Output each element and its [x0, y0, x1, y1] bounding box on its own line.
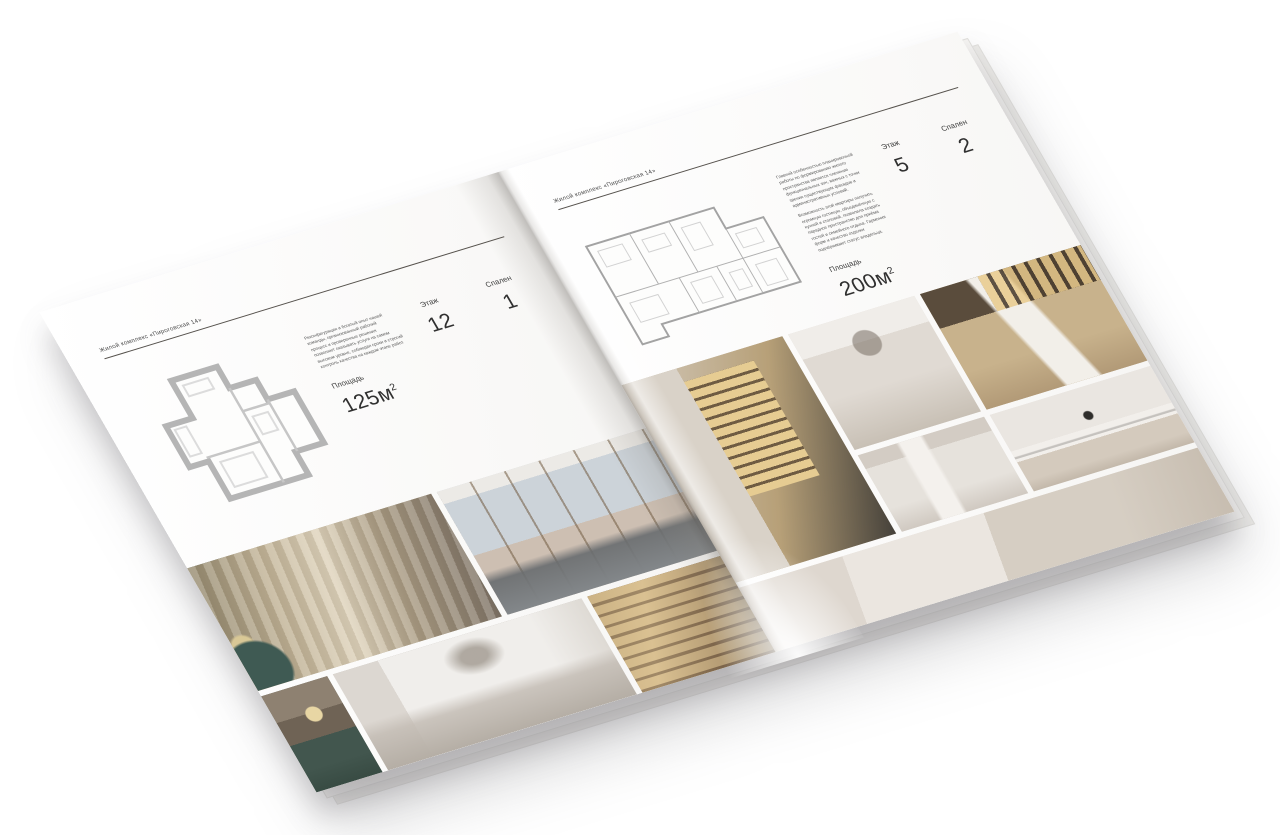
apartment-info: Реконфигурация и богатый опыт нашей кома… — [303, 268, 574, 418]
apartment-description: Реконфигурация и богатый опыт нашей кома… — [303, 310, 408, 370]
photo-backdrop: Жилой комплекс «Пироговская 14» — [0, 0, 1280, 835]
spec-area: Площадь 125м2 — [330, 357, 436, 419]
open-brochure: Жилой комплекс «Пироговская 14» — [39, 32, 1234, 793]
spec-area: Площадь 200м2 — [827, 242, 925, 301]
brochure-spread: Жилой комплекс «Пироговская 14» — [39, 32, 1234, 793]
spec-floor-value: 5 — [872, 147, 934, 183]
